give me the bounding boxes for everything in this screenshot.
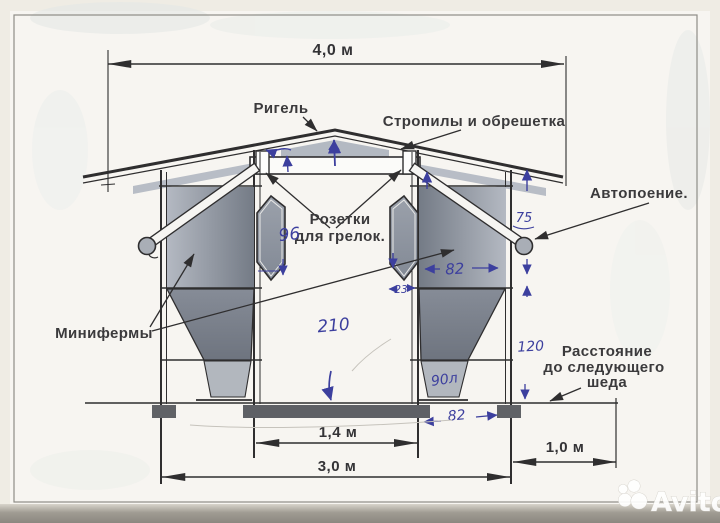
watermark-logo-dot — [631, 493, 647, 509]
label-sockets-line1: Розетки — [310, 211, 371, 228]
watermark-brand: Avito — [651, 487, 720, 518]
hand-pipe-mark: 75 — [516, 211, 533, 226]
hand-window-depth: 23 — [394, 284, 407, 296]
hand-up-arrow-1 — [287, 156, 288, 172]
label-distance-line1: Расстояние — [562, 343, 652, 360]
hand-base-width: 82 — [447, 407, 466, 424]
watermark-logo-dot — [619, 485, 628, 494]
hand-cage-width: 82 — [445, 260, 465, 279]
label-rafters: Стропилы и обрешетка — [383, 113, 566, 130]
paper — [10, 11, 710, 504]
label-distance-line3: шеда — [587, 374, 628, 391]
footing-right — [497, 405, 521, 418]
water-pipe-right — [516, 238, 533, 255]
hand-aisle-height: 210 — [317, 315, 351, 338]
scanned-drawing-page: 4,0 м — [0, 0, 720, 523]
label-sockets-line2: для грелок. — [295, 228, 385, 245]
label-minifarms: Минифермы — [55, 325, 153, 342]
hex-window-right — [390, 196, 418, 280]
dim-gap-value: 1,0 м — [546, 439, 585, 456]
dim-frame-value: 3,0 м — [318, 458, 357, 475]
watermark-logo-dot — [628, 480, 640, 492]
aisle-floor — [243, 405, 430, 418]
hand-clearance: 120 — [517, 338, 545, 355]
label-rigel: Ригель — [254, 100, 309, 117]
hand-socket-mark: 96 — [278, 224, 302, 246]
scanner-edge-strip — [0, 504, 720, 523]
dim-roof-span-value: 4,0 м — [312, 42, 353, 59]
footing-left — [152, 405, 176, 418]
water-pipe-left — [139, 238, 156, 255]
shed-cross-section-diagram: 4,0 м — [0, 0, 720, 523]
label-auto-watering: Автопоение. — [590, 185, 688, 202]
watermark-logo-dot — [619, 494, 632, 507]
